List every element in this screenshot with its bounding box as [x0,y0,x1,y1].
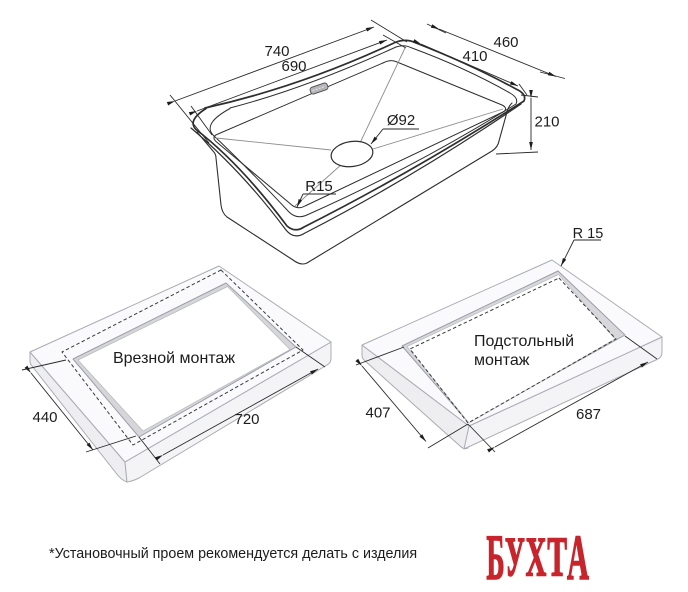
svg-text:460: 460 [493,34,518,51]
svg-text:Ø92: Ø92 [387,112,415,129]
svg-text:R 15: R 15 [573,226,604,242]
svg-text:Т: Т [547,525,567,588]
svg-text:монтаж: монтаж [474,352,530,369]
svg-text:Х: Х [526,525,547,588]
svg-text:407: 407 [365,405,390,422]
svg-text:Б: Б [486,520,504,592]
svg-text:У: У [505,525,525,589]
svg-text:410: 410 [462,48,487,65]
svg-text:Врезной монтаж: Врезной монтаж [113,350,235,367]
svg-text:*Установочный проем рекомендуе: *Установочный проем рекомендуется делать… [49,546,417,562]
svg-text:687: 687 [576,406,601,423]
svg-text:R15: R15 [305,178,333,195]
svg-text:440: 440 [32,409,57,426]
svg-text:720: 720 [234,411,259,428]
svg-text:Подстольный: Подстольный [474,333,574,350]
svg-text:210: 210 [534,114,559,131]
svg-text:690: 690 [281,58,306,75]
svg-text:А: А [567,521,589,592]
